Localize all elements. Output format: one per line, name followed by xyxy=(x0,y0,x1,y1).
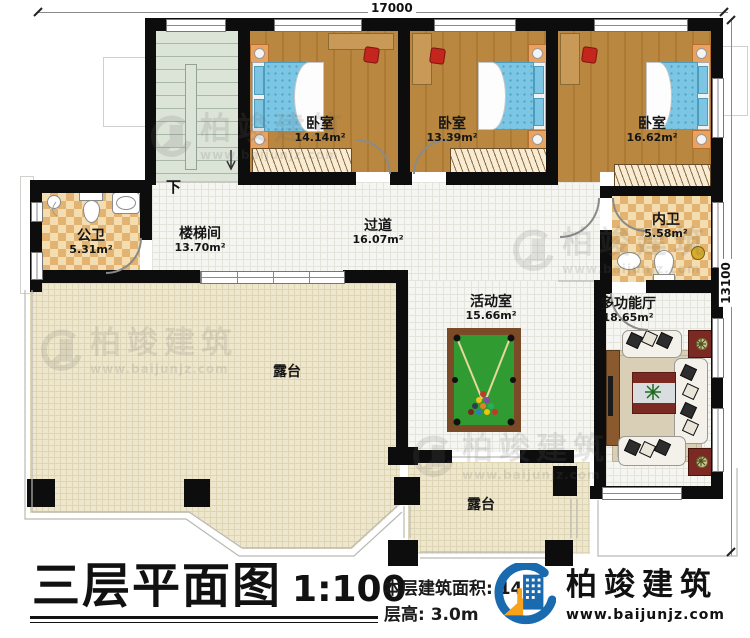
room-label-inner-bath: 内卫 5.58m² xyxy=(644,212,687,241)
brand-name: 柏竣建筑 xyxy=(566,570,725,601)
coffee-table xyxy=(632,372,676,414)
wall xyxy=(600,186,612,198)
window xyxy=(594,19,688,32)
stairwell-floor xyxy=(156,31,238,182)
window xyxy=(712,408,724,472)
wall xyxy=(140,180,152,240)
wall xyxy=(145,18,156,185)
top-dimension-label: 17000 xyxy=(368,1,416,15)
bed-pillow xyxy=(698,98,708,126)
floor-drain xyxy=(691,246,705,260)
bed-pillow xyxy=(254,66,264,95)
nightstand xyxy=(250,130,269,149)
window xyxy=(712,318,724,378)
chair xyxy=(363,46,380,64)
bed-pillow xyxy=(698,66,708,94)
window xyxy=(31,252,43,280)
window xyxy=(712,78,724,138)
sink xyxy=(617,252,641,270)
stair-rail xyxy=(185,64,197,170)
pillar xyxy=(27,479,55,507)
window xyxy=(200,271,345,284)
pillar xyxy=(184,479,210,507)
wall xyxy=(446,172,558,185)
bed-blanket xyxy=(478,62,506,130)
nightstand xyxy=(692,44,711,63)
bed-pillow xyxy=(534,98,544,126)
room-label-public-bath: 公卫 5.31m² xyxy=(69,228,112,257)
room-label-activity-room: 活动室 15.66m² xyxy=(465,294,516,323)
pillar xyxy=(553,466,577,496)
chair xyxy=(429,47,446,65)
wall xyxy=(594,280,610,293)
nightstand xyxy=(250,44,269,63)
pillar xyxy=(388,447,418,465)
wall xyxy=(30,180,152,193)
wall xyxy=(238,172,356,185)
bed-pillow xyxy=(534,66,544,94)
floor-plan-canvas: 17000 13100 xyxy=(0,0,750,638)
wall xyxy=(396,280,408,462)
shower-head xyxy=(47,195,61,209)
billiard-table xyxy=(447,328,521,432)
wall xyxy=(390,172,412,185)
room-label-terrace-left: 露台 xyxy=(273,364,301,380)
nightstand xyxy=(692,130,711,149)
room-label-hallway: 过道 16.07m² xyxy=(352,218,403,247)
terrace-left-floor xyxy=(30,283,400,551)
nightstand xyxy=(528,130,547,149)
stair-down-label: 下 xyxy=(166,176,181,197)
window xyxy=(31,202,43,222)
bed-pillow xyxy=(254,99,264,128)
brand-logo-icon xyxy=(494,563,556,629)
wardrobe xyxy=(450,148,548,174)
sink-basin xyxy=(116,196,136,210)
room-label-bedroom-1: 卧室 14.14m² xyxy=(294,116,345,145)
wall xyxy=(398,18,410,185)
desk xyxy=(328,33,394,50)
wardrobe xyxy=(252,148,352,174)
chair xyxy=(581,46,598,64)
right-dimension-label: 13100 xyxy=(719,259,733,307)
room-label-stairwell: 楼梯间 13.70m² xyxy=(174,226,225,255)
room-label-bedroom-3: 卧室 16.62m² xyxy=(626,116,677,145)
window xyxy=(602,487,682,500)
room-label-multi-hall: 多功能厅 18.65m² xyxy=(600,296,656,325)
desk xyxy=(560,33,580,85)
window xyxy=(434,19,516,32)
wall xyxy=(520,450,574,463)
roof-outline xyxy=(103,57,149,127)
title-underline-thin xyxy=(30,622,378,623)
brand-block: 柏竣建筑 www.baijunjz.com xyxy=(494,563,725,629)
window xyxy=(712,202,724,268)
brand-website: www.baijunjz.com xyxy=(566,607,725,623)
page-title: 三层平面图 xyxy=(32,562,282,610)
wall xyxy=(546,18,558,185)
wall xyxy=(646,280,723,293)
pillar xyxy=(394,477,420,505)
window xyxy=(166,19,226,32)
room-label-terrace-bottom: 露台 xyxy=(467,497,495,513)
wall xyxy=(238,18,250,185)
tv xyxy=(608,376,613,416)
window xyxy=(274,19,362,32)
wall xyxy=(600,186,711,196)
nightstand xyxy=(528,44,547,63)
room-label-bedroom-2: 卧室 13.39m² xyxy=(426,116,477,145)
title-block: 三层平面图 1:100 xyxy=(32,562,407,610)
title-underline xyxy=(30,616,378,619)
